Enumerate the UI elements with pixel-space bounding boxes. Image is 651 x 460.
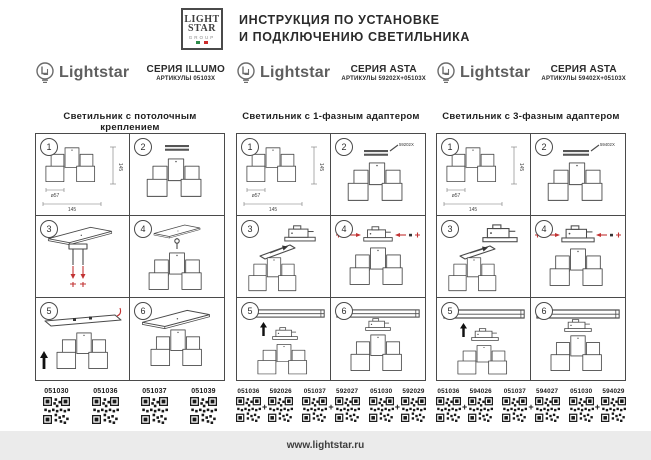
series-name: СЕРИЯ ASTA [541, 64, 626, 75]
step-number: 2 [535, 138, 553, 156]
qr-code [190, 397, 217, 424]
lightstar-bulb-icon [436, 62, 456, 84]
article-number: 051037 [504, 388, 526, 395]
qr-pair: 051030 + 592029 [369, 388, 426, 422]
step-number: 4 [535, 220, 553, 238]
title-line-2: И ПОДКЛЮЧЕНИЮ СВЕТИЛЬНИКА [239, 29, 470, 46]
step-cell-1: 1 145 ø57 145 [237, 134, 331, 216]
step-cell-5: 5 [237, 298, 331, 380]
qr-code [335, 397, 360, 422]
qr-code [369, 397, 394, 422]
plus-sign: + [595, 402, 600, 412]
step-cell-3: 3 [437, 216, 531, 298]
article-number: 051030 [570, 388, 592, 395]
series-articles: АРТИКУЛЫ 59202X+05103X [341, 76, 426, 82]
instruction-sheet: LIGHT STAR GROUP ИНСТРУКЦИЯ ПО УСТАНОВКЕ… [0, 0, 651, 460]
article-number: 051036 [237, 388, 259, 395]
step-grid: 1 145 ø57 145 2 [236, 133, 426, 381]
qr-pair: 051036 + 594026 [436, 388, 493, 422]
title-line-1: ИНСТРУКЦИЯ ПО УСТАНОВКЕ [239, 12, 470, 29]
step-number: 6 [335, 302, 353, 320]
step-cell-2: 2 [130, 134, 224, 216]
step-number: 2 [335, 138, 353, 156]
lightstar-group-logo: LIGHT STAR GROUP [181, 8, 223, 50]
qr-item: 592026 [268, 388, 293, 422]
brand-wordmark: Lightstar [59, 64, 129, 82]
qr-code [268, 397, 293, 422]
step-cell-4: 4 [331, 216, 425, 298]
qr-code [569, 397, 594, 422]
qr-item: 051036 [236, 388, 261, 422]
qr-item: 051030 [569, 388, 594, 422]
step-number: 6 [535, 302, 553, 320]
qr-item: 592029 [401, 388, 426, 422]
step-cell-1: 1 145 ø57 145 [36, 134, 130, 216]
step-number: 3 [441, 220, 459, 238]
step-cell-6: 6 [130, 298, 224, 380]
article-number: 592027 [336, 388, 358, 395]
column-ceiling-mount: Lightstar СЕРИЯ ILLUMO АРТИКУЛЫ 05103X С… [35, 62, 225, 432]
qr-pair: 051037 + 594027 [502, 388, 559, 422]
article-number: 051030 [370, 388, 392, 395]
series-articles: АРТИКУЛЫ 59402X+05103X [541, 76, 626, 82]
article-number: 051030 [44, 388, 69, 395]
svg-text:145: 145 [518, 163, 524, 172]
plus-sign: + [528, 402, 533, 412]
article-number: 592029 [402, 388, 424, 395]
step-number: 5 [241, 302, 259, 320]
article-number: 594026 [470, 388, 492, 395]
step-number: 3 [241, 220, 259, 238]
step-number: 6 [134, 302, 152, 320]
qr-item: 051036 [92, 388, 119, 424]
article-qr-row: 051036 + 592026 051037 + 592027 [236, 388, 426, 422]
qr-item: 051036 [436, 388, 461, 422]
qr-code [601, 397, 626, 422]
qr-code [468, 397, 493, 422]
step-grid: 1 145 ø57 145 [35, 133, 225, 381]
step-cell-2: 2 59202X [331, 134, 425, 216]
article-qr-row: 051036 + 594026 051037 + 594027 [436, 388, 626, 422]
plus-sign: + [395, 402, 400, 412]
column-title: Светильник с 3-фазным адаптером [436, 111, 626, 122]
qr-item: 051030 [369, 388, 394, 422]
qr-code [92, 397, 119, 424]
qr-code [141, 397, 168, 424]
qr-item: 594027 [535, 388, 560, 422]
qr-code [502, 397, 527, 422]
header: LIGHT STAR GROUP ИНСТРУКЦИЯ ПО УСТАНОВКЕ… [0, 8, 651, 50]
step-number: 5 [40, 302, 58, 320]
step-number: 1 [40, 138, 58, 156]
footer: www.lightstar.ru [0, 431, 651, 460]
lightstar-bulb-icon [236, 62, 256, 84]
qr-code [302, 397, 327, 422]
qr-item: 051037 [141, 388, 168, 424]
qr-code [436, 397, 461, 422]
step-number: 1 [241, 138, 259, 156]
step-cell-5: 5 [437, 298, 531, 380]
step-number: 3 [40, 220, 58, 238]
article-number: 051039 [191, 388, 216, 395]
svg-text:59402X: 59402X [600, 142, 615, 147]
svg-text:145: 145 [67, 207, 76, 212]
svg-text:ø57: ø57 [451, 193, 460, 199]
step-cell-4: 4 [130, 216, 224, 298]
article-number: 051037 [304, 388, 326, 395]
qr-code [401, 397, 426, 422]
column-1phase-adapter: Lightstar СЕРИЯ ASTA АРТИКУЛЫ 59202X+051… [236, 62, 426, 432]
logo-line-group: GROUP [189, 35, 216, 40]
article-number: 594029 [602, 388, 624, 395]
step-cell-5: 5 [36, 298, 130, 380]
plus-sign: + [328, 402, 333, 412]
article-qr-row: 051030 051036 051037 051039 [35, 388, 225, 424]
logo-line-star: STAR [188, 24, 216, 33]
svg-text:145: 145 [117, 163, 123, 172]
qr-item: 051039 [190, 388, 217, 424]
column-3phase-adapter: Lightstar СЕРИЯ ASTA АРТИКУЛЫ 59402X+051… [436, 62, 626, 432]
step-cell-1: 1 145 ø57 145 [437, 134, 531, 216]
series-name: СЕРИЯ ASTA [341, 64, 426, 75]
step-cell-6: 6 [531, 298, 625, 380]
qr-pair: 051036 + 592026 [236, 388, 293, 422]
brand-row: Lightstar СЕРИЯ ASTA АРТИКУЛЫ 59402X+051… [436, 62, 626, 84]
qr-item: 051030 [43, 388, 70, 424]
website-url: www.lightstar.ru [287, 440, 364, 451]
svg-text:145: 145 [318, 163, 324, 172]
brand-wordmark: Lightstar [460, 64, 530, 82]
article-number: 051036 [93, 388, 118, 395]
step-cell-6: 6 [331, 298, 425, 380]
qr-pair: 051030 + 594029 [569, 388, 626, 422]
brand-row: Lightstar СЕРИЯ ASTA АРТИКУЛЫ 59202X+051… [236, 62, 426, 84]
column-title: Светильник с 1-фазным адаптером [236, 111, 426, 122]
step-cell-3: 3 [237, 216, 331, 298]
step-number: 1 [441, 138, 459, 156]
article-number: 592026 [270, 388, 292, 395]
qr-pair: 051037 + 592027 [302, 388, 359, 422]
lightstar-bulb-icon [35, 62, 55, 84]
brand-row: Lightstar СЕРИЯ ILLUMO АРТИКУЛЫ 05103X [35, 62, 225, 84]
step-grid: 1 145 ø57 145 2 [436, 133, 626, 381]
plus-sign: + [262, 402, 267, 412]
qr-code [236, 397, 261, 422]
qr-code [535, 397, 560, 422]
article-number: 051036 [437, 388, 459, 395]
qr-item: 594029 [601, 388, 626, 422]
qr-item: 051037 [502, 388, 527, 422]
series-name: СЕРИЯ ILLUMO [147, 64, 225, 75]
step-number: 4 [335, 220, 353, 238]
document-title: ИНСТРУКЦИЯ ПО УСТАНОВКЕ И ПОДКЛЮЧЕНИЮ СВ… [239, 12, 470, 46]
svg-text:145: 145 [468, 207, 477, 212]
qr-item: 592027 [335, 388, 360, 422]
qr-code [43, 397, 70, 424]
svg-text:145: 145 [268, 207, 277, 212]
step-number: 4 [134, 220, 152, 238]
svg-text:59202X: 59202X [399, 142, 414, 147]
step-cell-3: 3 [36, 216, 130, 298]
series-articles: АРТИКУЛЫ 05103X [147, 76, 225, 82]
step-cell-2: 2 59402X [531, 134, 625, 216]
step-cell-4: 4 [531, 216, 625, 298]
column-title: Светильник с потолочным креплением [35, 111, 225, 133]
qr-item: 594026 [468, 388, 493, 422]
brand-wordmark: Lightstar [260, 64, 330, 82]
step-number: 2 [134, 138, 152, 156]
qr-item: 051037 [302, 388, 327, 422]
svg-text:ø57: ø57 [50, 193, 59, 199]
italy-flag-icon [196, 41, 208, 44]
step-number: 5 [441, 302, 459, 320]
article-number: 051037 [142, 388, 167, 395]
article-number: 594027 [536, 388, 558, 395]
plus-sign: + [462, 402, 467, 412]
svg-text:ø57: ø57 [251, 193, 260, 199]
